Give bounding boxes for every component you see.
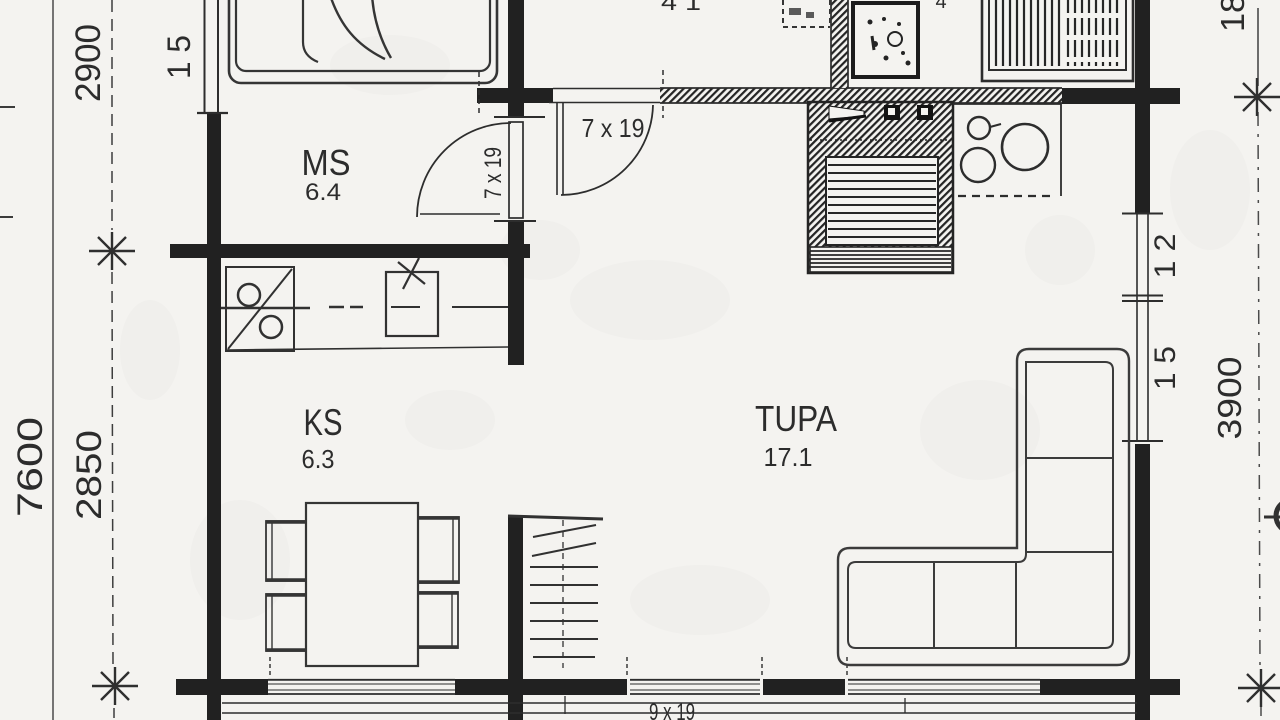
svg-text:MS: MS [302,142,351,183]
svg-text:7 x 19: 7 x 19 [480,147,507,199]
svg-text:1 2: 1 2 [1149,234,1182,279]
svg-text:2900: 2900 [69,24,108,102]
svg-text:17.1: 17.1 [764,442,813,472]
svg-text:3900: 3900 [1211,357,1248,440]
svg-text:TUPA: TUPA [755,398,837,439]
svg-text:6.4: 6.4 [305,179,341,206]
svg-text:7 x 19: 7 x 19 [582,113,645,143]
svg-text:1 5: 1 5 [1149,346,1182,390]
svg-text:2850: 2850 [70,430,109,520]
svg-text:9 x 19: 9 x 19 [649,699,695,720]
svg-text:4: 4 [935,0,946,13]
svg-text:KS: KS [304,402,343,443]
svg-text:1 5: 1 5 [161,35,197,79]
svg-text:4 1: 4 1 [661,0,701,16]
svg-text:6.3: 6.3 [302,444,335,474]
svg-text:7600: 7600 [11,417,50,517]
svg-text:18: 18 [1214,0,1251,32]
